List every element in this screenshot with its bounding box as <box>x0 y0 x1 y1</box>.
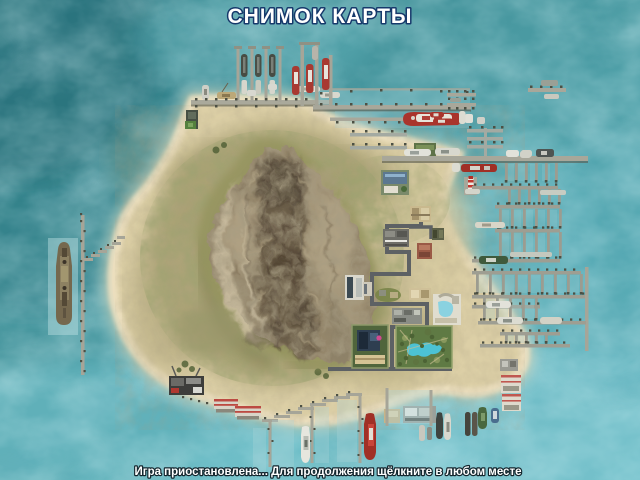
svg-text:СНИМОК КАРТЫ: СНИМОК КАРТЫ <box>227 5 412 28</box>
svg-text:Игра приостановлена... Для про: Игра приостановлена... Для продолжения щ… <box>135 466 522 478</box>
